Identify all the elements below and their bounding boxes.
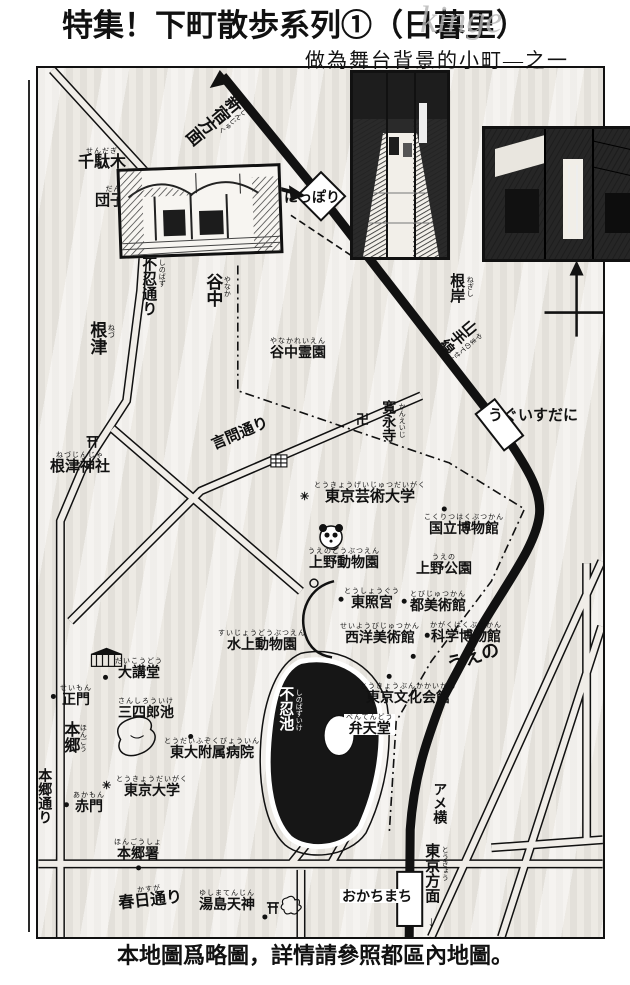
photo-nippori-station	[116, 163, 283, 259]
map-caption: 本地圖爲略圖，詳情請參照都區內地圖。	[0, 938, 630, 970]
label-yanaka-cemetery: やなかれいえん谷中霊園	[270, 338, 326, 359]
page-subtitle: 做為舞台背景的小町—之一	[305, 44, 569, 73]
sketch-map: せんだぎ千駄木 だんご団子坂 やなか谷中 やなかれいえん谷中霊園 ねぎし根岸 ね…	[36, 66, 605, 939]
label-hongo-police: ほんごうしょ本郷署	[114, 839, 162, 860]
campus-building-icon	[271, 455, 287, 467]
label-yanaka: やなか谷中	[204, 273, 221, 307]
label-hongo: ほんごう本郷	[61, 721, 77, 753]
label-akamon: あかもん赤門	[73, 792, 105, 813]
sanshiro-pond-outline	[118, 717, 155, 756]
label-aquatic-zoo: すいじょうどうぶつえん水上動物園	[218, 630, 306, 651]
panda-icon	[319, 524, 343, 550]
label-hongo-dori: 本郷通り	[38, 768, 52, 824]
label-bunka-kaikan: とうきょうぶんかかいかん東京文化会館	[360, 683, 456, 704]
label-auditorium: だいこうどう大講堂	[115, 658, 163, 679]
label-uguisudani-station: うぐいすだに	[488, 408, 578, 423]
label-main-gate: せいもん正門	[60, 685, 92, 706]
tokyo-direction-arrow-icon: ↓	[428, 914, 435, 928]
manga-map-page: 特集！下町散歩系列①（日暮里） kinge 做為舞台背景的小町—之一	[0, 0, 630, 985]
label-bentendo: べんてんどう弁天堂	[344, 714, 395, 735]
temple-mark-icon-kaneiji: 卍	[356, 413, 369, 426]
label-yushima-tenjin: ゆしまてんじん湯島天神	[199, 890, 255, 911]
school-mark-icon-geidai: ✳	[300, 492, 309, 503]
torii-icon-yushima	[267, 903, 279, 914]
label-ueno-zoo: うえのどうぶつえん上野動物園	[308, 548, 380, 569]
label-toshogu: とうしょうぐう東照宮	[344, 588, 400, 609]
label-metropolitan-art-museum: とびじゅつかん都美術館	[410, 591, 466, 612]
label-ameyoko: アメ横	[433, 782, 447, 824]
label-shinobazu-dori: しのばず不忍通り	[141, 256, 156, 316]
label-okachimachi-station: おかちまち	[340, 889, 414, 903]
page-edge-line	[28, 80, 30, 932]
label-nezu-shrine: ねづじんじゃ根津神社	[50, 452, 110, 474]
label-tokyo-university: とうきょうだいがく東京大学	[116, 776, 188, 797]
label-kaneiji: かんえいじ寛永寺	[382, 400, 396, 442]
aquatic-zoo-loop	[310, 579, 318, 587]
north-cross	[545, 260, 603, 336]
label-tokyo-direction: とうきょう東京方面	[424, 843, 439, 903]
label-shinobazu-pond: しのばずいけ不忍池	[278, 686, 293, 731]
label-sanshiro-pond: さんしろういけ三四郎池	[118, 698, 174, 719]
photo-yanaka-alley	[350, 70, 450, 260]
photo-shopping-street	[482, 126, 630, 262]
sanshiro-pond-wave	[131, 736, 144, 739]
label-nezu: ねづ根津	[88, 321, 105, 355]
label-negishi: ねぎし根岸	[449, 273, 464, 303]
label-western-art-museum: せいようびじゅつかん西洋美術館	[340, 623, 420, 644]
label-nippori-station: にっぽり	[284, 190, 340, 204]
label-univ-hospital: とうだいふぞくびょういん東大附属病院	[164, 738, 260, 759]
label-national-museum: こくりつはくぶつかん国立博物館	[424, 514, 504, 535]
aquatic-zoo-path	[303, 581, 334, 657]
label-ueno-park: うえの上野公園	[416, 554, 472, 575]
scan-watermark: kinge	[420, 0, 502, 42]
school-mark-icon-todai: ✳	[102, 781, 111, 792]
label-geidai: とうきょうげいじゅつだいがく東京芸術大学	[314, 482, 426, 504]
